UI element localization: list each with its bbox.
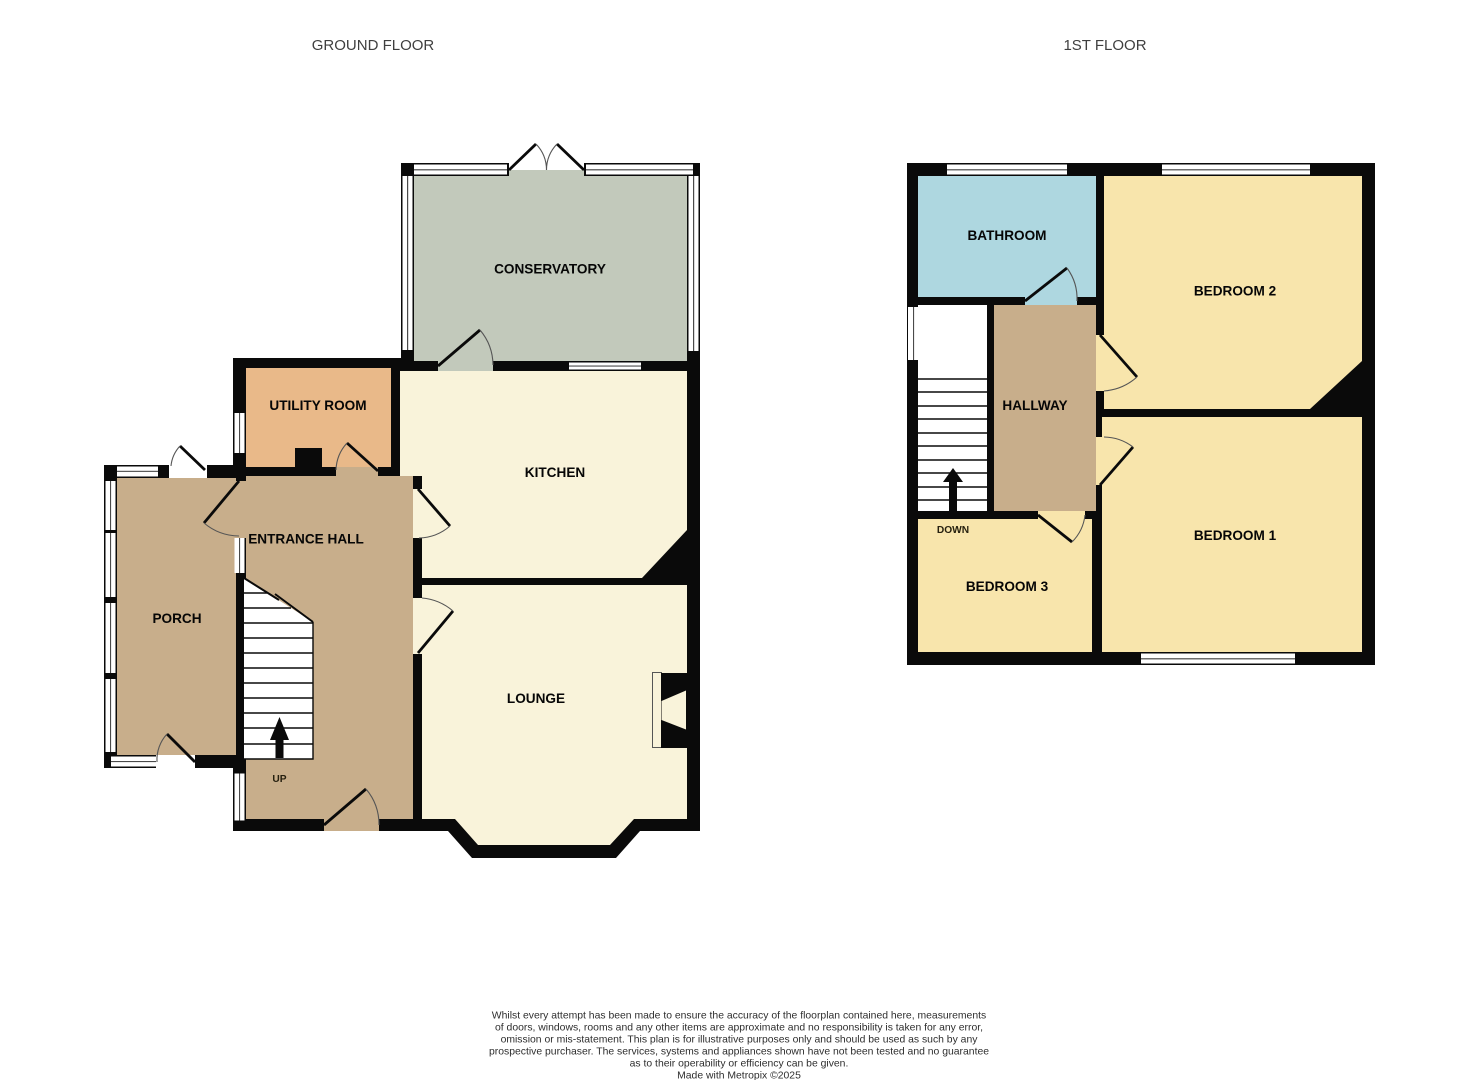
svg-text:BEDROOM 1: BEDROOM 1 — [1194, 528, 1277, 543]
svg-text:KITCHEN: KITCHEN — [525, 465, 585, 480]
svg-text:GROUND FLOOR: GROUND FLOOR — [312, 37, 435, 54]
svg-text:ENTRANCE HALL: ENTRANCE HALL — [248, 532, 364, 547]
svg-text:BATHROOM: BATHROOM — [967, 228, 1046, 243]
svg-text:DOWN: DOWN — [937, 525, 969, 536]
svg-text:as to their operability or eff: as to their operability or efficiency ca… — [630, 1059, 849, 1070]
svg-text:of doors, windows, rooms and a: of doors, windows, rooms and any other i… — [495, 1023, 983, 1034]
svg-text:Whilst every attempt has been: Whilst every attempt has been made to en… — [492, 1011, 986, 1022]
svg-text:BEDROOM 2: BEDROOM 2 — [1194, 284, 1277, 299]
svg-text:Made with Metropix ©2025: Made with Metropix ©2025 — [677, 1071, 801, 1080]
svg-text:prospective purchaser. The ser: prospective purchaser. The services, sys… — [489, 1047, 989, 1058]
svg-text:HALLWAY: HALLWAY — [1002, 398, 1067, 413]
svg-text:CONSERVATORY: CONSERVATORY — [494, 262, 606, 277]
svg-text:1ST FLOOR: 1ST FLOOR — [1063, 37, 1146, 54]
svg-text:UTILITY ROOM: UTILITY ROOM — [269, 398, 366, 413]
svg-text:LOUNGE: LOUNGE — [507, 691, 565, 706]
svg-text:omission or mis-statement. Thi: omission or mis-statement. This plan is … — [501, 1035, 979, 1046]
svg-text:BEDROOM 3: BEDROOM 3 — [966, 579, 1049, 594]
svg-text:UP: UP — [272, 774, 286, 785]
svg-text:PORCH: PORCH — [152, 611, 201, 626]
